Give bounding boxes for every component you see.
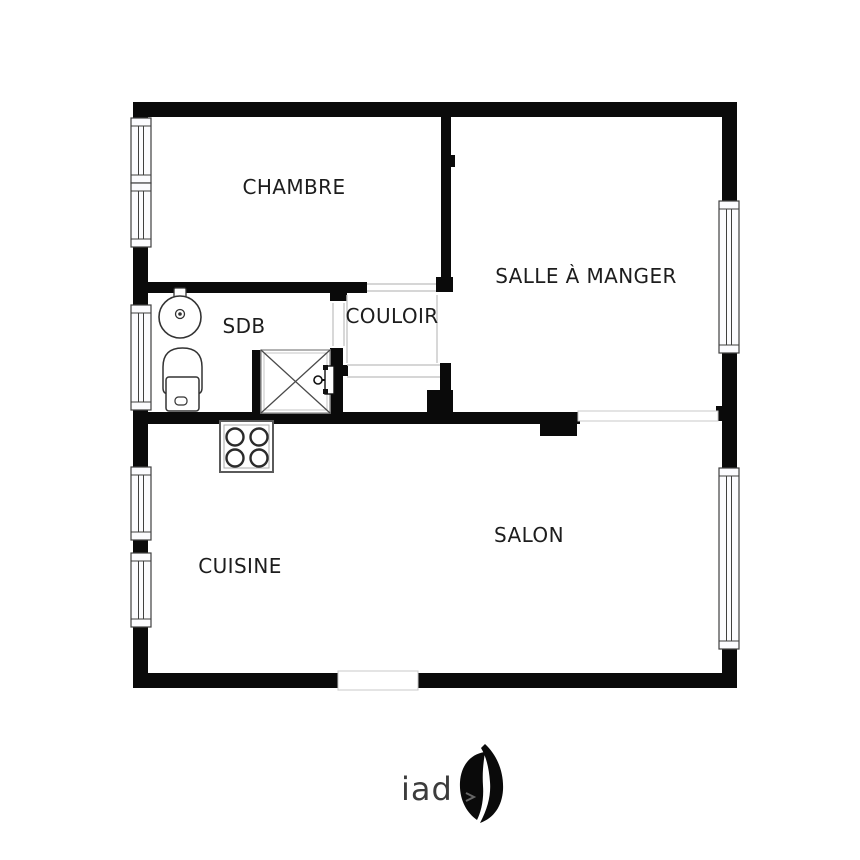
sink-drain-dot — [178, 312, 182, 316]
window — [131, 553, 151, 627]
toilet-flush-button — [175, 397, 187, 405]
stove-burner — [251, 450, 268, 467]
room-label-sdb: SDB — [222, 314, 265, 338]
wall — [133, 673, 737, 688]
window — [131, 118, 151, 183]
floor-plan: CHAMBRE SALLE À MANGER SDB COULOIR CUISI… — [0, 0, 860, 860]
room-label-chambre: CHAMBRE — [243, 175, 346, 199]
wall — [441, 117, 451, 277]
toilet-base — [166, 377, 199, 411]
iad-logo-icon — [456, 739, 508, 827]
wall — [440, 363, 451, 390]
window — [131, 467, 151, 540]
wall — [427, 390, 453, 413]
floor-plan-drawing — [0, 0, 860, 860]
room-label-salon: SALON — [494, 523, 564, 547]
window — [131, 305, 151, 410]
wall — [436, 277, 453, 292]
wall — [133, 412, 580, 424]
window — [719, 468, 739, 649]
door-hinge — [323, 365, 328, 370]
window — [719, 201, 739, 353]
room-boundary-band — [578, 411, 718, 421]
wall — [451, 155, 455, 167]
wall — [343, 365, 348, 376]
stove-burner — [227, 450, 244, 467]
window — [131, 183, 151, 247]
wall — [252, 350, 261, 413]
room-label-cuisine: CUISINE — [198, 554, 282, 578]
wall — [133, 282, 367, 293]
room-label-salle-a-manger: SALLE À MANGER — [495, 264, 677, 288]
brand-text: iad — [401, 770, 453, 808]
entrance-opening — [338, 671, 418, 690]
stove-burner — [227, 429, 244, 446]
stove-burner — [251, 429, 268, 446]
door-hinge — [323, 389, 328, 394]
room-label-couloir: COULOIR — [345, 304, 438, 328]
wall — [330, 293, 347, 301]
wall — [540, 424, 577, 436]
wall — [133, 102, 737, 117]
door-knob — [314, 376, 322, 384]
